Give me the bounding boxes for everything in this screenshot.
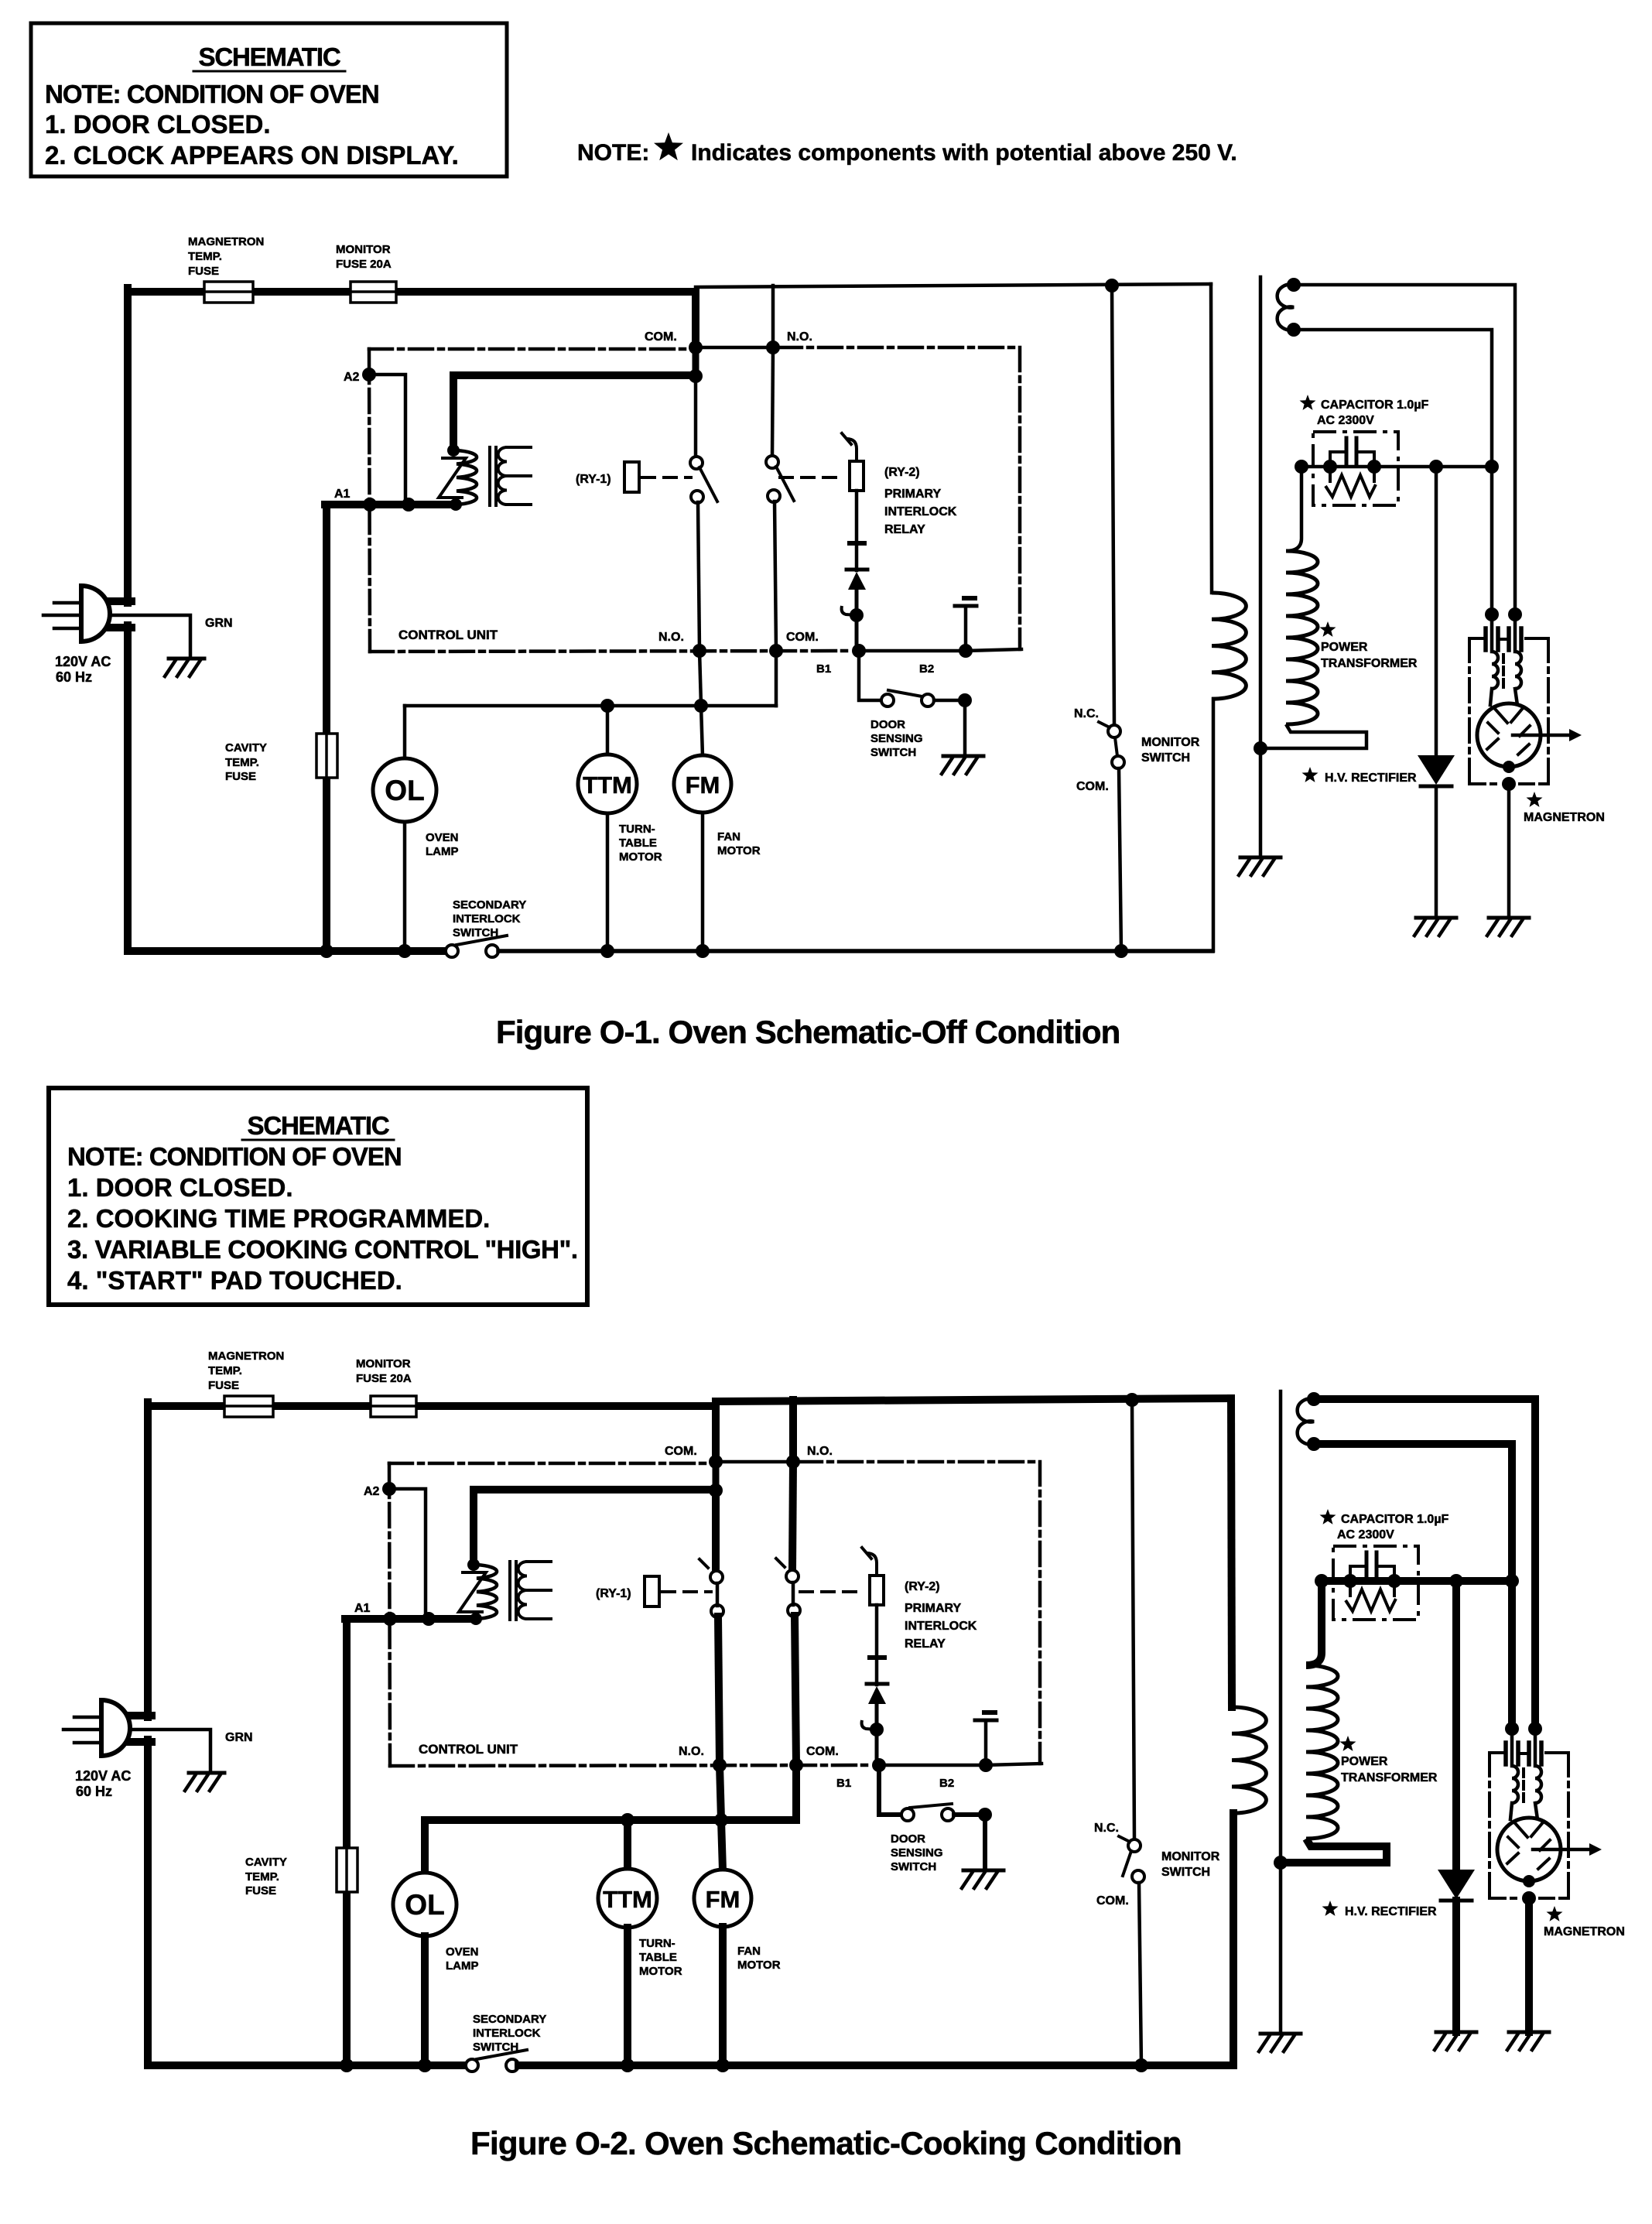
svg-text:N.O.: N.O. <box>787 330 812 344</box>
svg-text:FUSE: FUSE <box>208 1379 239 1392</box>
svg-text:GRN: GRN <box>225 1731 253 1744</box>
svg-text:MOTOR: MOTOR <box>639 1965 682 1978</box>
svg-text:OL: OL <box>385 775 424 806</box>
svg-text:INTERLOCK: INTERLOCK <box>473 2027 541 2040</box>
svg-text:FUSE: FUSE <box>188 265 219 278</box>
svg-text:NOTE: CONDITION OF OVEN: NOTE: CONDITION OF OVEN <box>67 1142 402 1171</box>
svg-text:A2: A2 <box>344 371 360 384</box>
svg-text:COM.: COM. <box>1076 780 1109 793</box>
svg-text:MONITOR: MONITOR <box>1161 1850 1220 1863</box>
svg-text:60 Hz: 60 Hz <box>76 1784 112 1799</box>
svg-text:CAVITY: CAVITY <box>225 741 267 754</box>
svg-text:MOTOR: MOTOR <box>737 1959 781 1972</box>
svg-text:120V AC: 120V AC <box>55 654 111 669</box>
svg-text:CAVITY: CAVITY <box>245 1856 287 1869</box>
svg-text:N.O.: N.O. <box>679 1745 704 1758</box>
svg-text:FUSE: FUSE <box>245 1884 276 1897</box>
svg-text:TABLE: TABLE <box>639 1951 677 1964</box>
svg-text:MONITOR: MONITOR <box>1141 736 1200 749</box>
svg-text:COM.: COM. <box>665 1445 697 1458</box>
svg-text:FUSE 20A: FUSE 20A <box>336 258 392 271</box>
svg-text:60 Hz: 60 Hz <box>56 669 92 685</box>
svg-text:RELAY: RELAY <box>905 1637 946 1651</box>
svg-text:INTERLOCK: INTERLOCK <box>884 505 957 518</box>
svg-text:MONITOR: MONITOR <box>356 1357 411 1370</box>
svg-text:FAN: FAN <box>717 830 740 843</box>
svg-text:TRANSFORMER: TRANSFORMER <box>1321 657 1418 670</box>
svg-text:SWITCH: SWITCH <box>891 1860 936 1873</box>
svg-text:SWITCH: SWITCH <box>453 926 498 939</box>
svg-text:4. "START" PAD TOUCHED.: 4. "START" PAD TOUCHED. <box>67 1266 402 1295</box>
svg-text:GRN: GRN <box>205 617 233 630</box>
svg-text:TEMP.: TEMP. <box>208 1364 242 1377</box>
svg-text:N.O.: N.O. <box>807 1445 833 1458</box>
svg-text:INTERLOCK: INTERLOCK <box>453 912 521 926</box>
svg-text:MAGNETRON: MAGNETRON <box>1544 1925 1625 1938</box>
svg-text:TTM: TTM <box>583 772 632 799</box>
svg-text:TABLE: TABLE <box>619 837 657 850</box>
svg-text:FAN: FAN <box>737 1945 761 1958</box>
svg-text:N.O.: N.O. <box>658 631 684 644</box>
svg-text:CONTROL UNIT: CONTROL UNIT <box>419 1742 518 1757</box>
svg-text:CONTROL UNIT: CONTROL UNIT <box>398 628 498 642</box>
svg-text:SWITCH: SWITCH <box>870 746 916 759</box>
svg-text:FUSE 20A: FUSE 20A <box>356 1372 412 1385</box>
svg-text:B2: B2 <box>939 1777 954 1790</box>
svg-text:NOTE:: NOTE: <box>577 140 649 166</box>
svg-text:Figure O-1. Oven Schematic-Off: Figure O-1. Oven Schematic-Off Condition <box>496 1014 1120 1050</box>
svg-text:CAPACITOR 1.0µF: CAPACITOR 1.0µF <box>1321 399 1429 412</box>
svg-text:(RY-2): (RY-2) <box>905 1580 940 1593</box>
svg-text:SWITCH: SWITCH <box>1141 751 1190 765</box>
svg-text:OL: OL <box>405 1889 444 1921</box>
svg-text:120V AC: 120V AC <box>75 1768 131 1784</box>
svg-text:MOTOR: MOTOR <box>619 850 662 864</box>
svg-text:N.C.: N.C. <box>1094 1822 1119 1835</box>
svg-text:SCHEMATIC: SCHEMATIC <box>248 1111 389 1140</box>
svg-text:A2: A2 <box>364 1485 380 1498</box>
svg-text:MAGNETRON: MAGNETRON <box>208 1350 284 1363</box>
svg-text:SECONDARY: SECONDARY <box>453 898 526 912</box>
svg-text:MOTOR: MOTOR <box>717 844 761 857</box>
svg-text:AC 2300V: AC 2300V <box>1337 1528 1394 1541</box>
svg-text:H.V. RECTIFIER: H.V. RECTIFIER <box>1325 772 1417 785</box>
svg-text:(RY-1): (RY-1) <box>576 473 611 486</box>
svg-text:H.V. RECTIFIER: H.V. RECTIFIER <box>1345 1905 1437 1918</box>
svg-text:DOOR: DOOR <box>891 1832 925 1846</box>
svg-text:FM: FM <box>706 1886 740 1913</box>
svg-text:B1: B1 <box>836 1777 851 1790</box>
svg-text:B1: B1 <box>816 662 831 676</box>
svg-text:LAMP: LAMP <box>446 1959 479 1973</box>
svg-text:PRIMARY: PRIMARY <box>905 1602 962 1615</box>
svg-text:2. CLOCK APPEARS ON DISPLAY.: 2. CLOCK APPEARS ON DISPLAY. <box>45 141 459 169</box>
svg-text:POWER: POWER <box>1321 641 1368 654</box>
svg-text:Figure O-2. Oven Schematic-Coo: Figure O-2. Oven Schematic-Cooking Condi… <box>470 2125 1182 2161</box>
svg-text:1. DOOR CLOSED.: 1. DOOR CLOSED. <box>45 110 271 139</box>
svg-text:FUSE: FUSE <box>225 770 256 783</box>
svg-text:TEMP.: TEMP. <box>245 1870 279 1884</box>
svg-text:(RY-2): (RY-2) <box>884 466 920 479</box>
svg-text:TURN-: TURN- <box>639 1937 676 1950</box>
svg-text:Indicates components with pote: Indicates components with potential abov… <box>691 140 1237 166</box>
svg-text:B2: B2 <box>919 662 934 676</box>
svg-text:(RY-1): (RY-1) <box>596 1587 631 1600</box>
svg-text:A1: A1 <box>354 1602 371 1615</box>
svg-text:SENSING: SENSING <box>891 1846 943 1860</box>
svg-text:OVEN: OVEN <box>446 1945 479 1959</box>
svg-text:SECONDARY: SECONDARY <box>473 2013 546 2026</box>
svg-text:MAGNETRON: MAGNETRON <box>1524 811 1605 824</box>
svg-text:NOTE: CONDITION OF OVEN: NOTE: CONDITION OF OVEN <box>45 80 379 108</box>
svg-text:PRIMARY: PRIMARY <box>884 488 942 501</box>
svg-text:A1: A1 <box>334 488 351 501</box>
svg-text:MAGNETRON: MAGNETRON <box>188 235 264 248</box>
svg-text:COM.: COM. <box>806 1745 839 1758</box>
svg-text:OVEN: OVEN <box>426 831 459 844</box>
svg-text:3. VARIABLE COOKING CONTROL ": 3. VARIABLE COOKING CONTROL "HIGH". <box>67 1235 578 1264</box>
svg-text:SCHEMATIC: SCHEMATIC <box>199 43 340 71</box>
svg-text:POWER: POWER <box>1341 1755 1388 1768</box>
svg-text:DOOR: DOOR <box>870 718 905 731</box>
svg-text:2. COOKING TIME PROGRAMMED.: 2. COOKING TIME PROGRAMMED. <box>67 1204 490 1233</box>
svg-text:TEMP.: TEMP. <box>225 756 259 769</box>
svg-text:N.C.: N.C. <box>1074 707 1099 720</box>
svg-text:SENSING: SENSING <box>870 732 923 745</box>
svg-text:INTERLOCK: INTERLOCK <box>905 1620 977 1633</box>
svg-text:FM: FM <box>686 772 720 799</box>
svg-text:LAMP: LAMP <box>426 845 459 858</box>
svg-text:COM.: COM. <box>645 330 677 344</box>
svg-text:TURN-: TURN- <box>619 823 655 836</box>
svg-text:COM.: COM. <box>786 631 819 644</box>
svg-text:TRANSFORMER: TRANSFORMER <box>1341 1771 1438 1784</box>
svg-text:TEMP.: TEMP. <box>188 250 222 263</box>
svg-text:SWITCH: SWITCH <box>473 2041 518 2054</box>
svg-text:SWITCH: SWITCH <box>1161 1866 1210 1879</box>
svg-text:RELAY: RELAY <box>884 523 925 536</box>
svg-text:TTM: TTM <box>603 1886 652 1913</box>
svg-text:AC 2300V: AC 2300V <box>1317 414 1374 427</box>
svg-text:1. DOOR CLOSED.: 1. DOOR CLOSED. <box>67 1173 293 1202</box>
svg-text:COM.: COM. <box>1096 1894 1129 1908</box>
svg-text:MONITOR: MONITOR <box>336 243 391 256</box>
svg-text:CAPACITOR 1.0µF: CAPACITOR 1.0µF <box>1341 1513 1449 1526</box>
